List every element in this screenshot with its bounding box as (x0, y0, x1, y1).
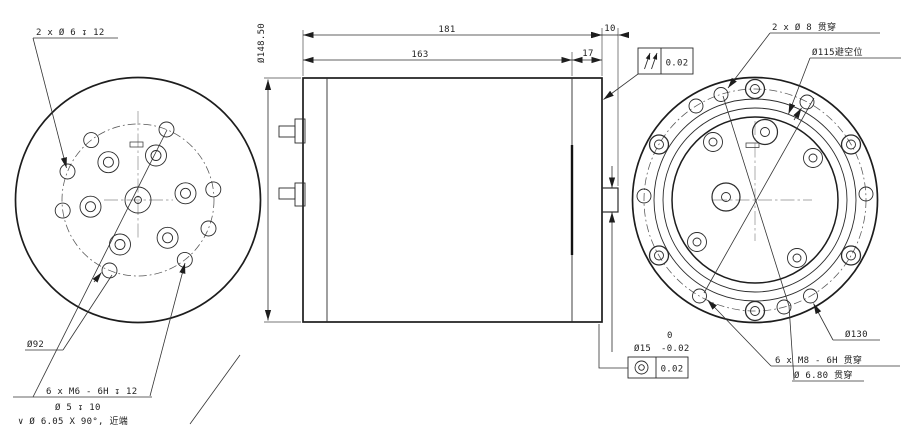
connector-pin (279, 126, 295, 137)
inner-hole (793, 254, 801, 262)
cad-drawing-canvas: 2 x Ø 6 ↧ 12 Ø92 6 x M6 - 6H ↧ 12 Ø 5 ↧ … (0, 0, 902, 441)
callout-holes-top: 2 x Ø 6 ↧ 12 (36, 27, 105, 38)
inner-hole (704, 133, 723, 152)
concentricity-value: 0.02 (661, 365, 684, 375)
leader-line (599, 324, 628, 368)
hole (60, 164, 75, 179)
leader-chord (723, 96, 794, 380)
leader-line (63, 275, 112, 350)
leader-line (728, 33, 770, 88)
front-view: 2 x Ø 6 ↧ 12 Ø92 6 x M6 - 6H ↧ 12 Ø 5 ↧ … (13, 27, 261, 427)
leader-line (789, 58, 811, 114)
counterbore-hole (163, 233, 173, 243)
counterbore-hole (115, 240, 125, 250)
pilot-hole-large (761, 128, 770, 137)
callout-d8: 2 x Ø 8 贯穿 (772, 21, 836, 33)
callout-m8-line1: 6 x M8 - 6H 贯穿 (775, 354, 862, 366)
callout-m6-line1: 6 x M6 - 6H ↧ 12 (46, 387, 138, 397)
dim-end-length: 10 (604, 24, 615, 34)
rear-view: 2 x Ø 8 贯穿 Ø115避空位 Ø130 6 x M8 - 6H 贯穿 Ø… (633, 21, 902, 381)
callout-d115: Ø115避空位 (812, 46, 863, 58)
inner-hole (688, 233, 707, 252)
pilot-hole-large (753, 120, 778, 145)
shaft-diameter: Ø15 (634, 343, 651, 354)
counterbore-hole (146, 145, 167, 166)
inner-hole (804, 149, 823, 168)
counterbore-hole (110, 234, 131, 255)
callout-m6-line3: ∨ Ø 6.05 X 90°, 近端 (18, 415, 128, 427)
counterbore-hole (181, 188, 191, 198)
tolerance-frame-parallelism: 0.02 (604, 48, 694, 100)
connector-pin (279, 188, 295, 199)
hole (714, 88, 728, 102)
shaft-tolerance-lower: -0.02 (661, 344, 690, 354)
rear-leaders (704, 33, 901, 381)
engineering-drawing: 2 x Ø 6 ↧ 12 Ø92 6 x M6 - 6H ↧ 12 Ø 5 ↧ … (0, 0, 902, 441)
callout-m6-line2: Ø 5 ↧ 10 (55, 402, 101, 413)
inner-hole (709, 138, 717, 146)
shaft-tolerance-upper: 0 (667, 331, 673, 341)
pilot-hole-left (712, 183, 740, 211)
callout-bolt-circle-dia: Ø92 (27, 339, 44, 350)
inner-hole (788, 249, 807, 268)
end-shaft (602, 188, 618, 212)
leader-line (150, 263, 185, 396)
dim-total-length: 181 (438, 25, 455, 35)
leader-line (604, 74, 639, 100)
leader-line (33, 38, 67, 168)
side-view: 0.02 0.02 Ø148.50 181 163 17 10 0 Ø15 -0… (256, 23, 693, 378)
front-keyway-marker (130, 142, 143, 147)
extension-lines (264, 28, 618, 322)
counterbore-hole (86, 202, 96, 212)
counterbore-hole (175, 183, 196, 204)
body-outline (303, 78, 602, 322)
counterbore-hole (103, 157, 113, 167)
parallelism-value: 0.02 (666, 59, 689, 69)
front-leaders (13, 38, 240, 424)
counterbore-hole (157, 227, 178, 248)
leader-line (190, 355, 240, 424)
dim-body-length: 163 (411, 50, 428, 60)
m8-hole (847, 251, 856, 260)
counterbore-hole (80, 196, 101, 217)
rear-keyway-marker (746, 143, 759, 148)
leader-line (33, 130, 167, 397)
m8-hole (842, 246, 861, 265)
dim-cap-length: 17 (582, 49, 593, 59)
counterbore-hole (98, 152, 119, 173)
dim-outer-diameter: Ø148.50 (256, 23, 267, 63)
inner-hole (693, 238, 701, 246)
leader-line (814, 304, 834, 341)
callout-d130: Ø130 (845, 329, 868, 340)
inner-hole (809, 154, 817, 162)
callout-m8-line2: Ø 6.80 贯穿 (794, 369, 853, 381)
hole (201, 221, 216, 236)
leader-chord (704, 98, 814, 293)
connectors (279, 119, 305, 206)
